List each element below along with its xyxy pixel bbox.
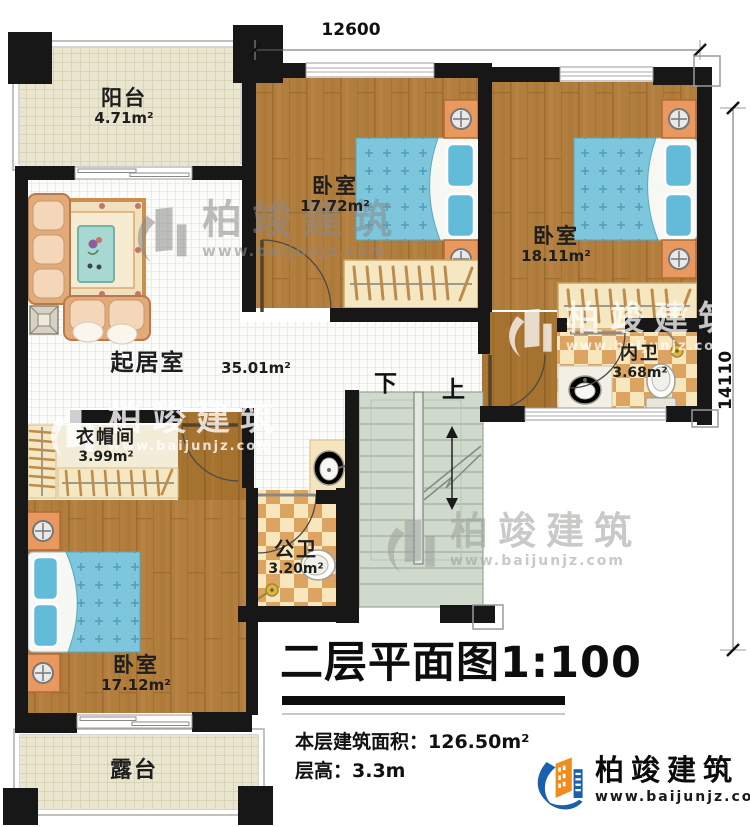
floor-area-line: 本层建筑面积：126.50m² [295, 727, 529, 754]
staircase [359, 392, 483, 607]
balcony-label: 阳台 4.71m² [62, 86, 186, 127]
nightstand [662, 240, 696, 278]
living-room-furniture [28, 194, 150, 344]
living-floor-c [345, 322, 490, 392]
wardrobe [344, 260, 478, 308]
window [560, 67, 653, 81]
coffee-table [78, 226, 114, 282]
public-bath-label: 公卫 3.20m² [254, 538, 338, 577]
nightstand [26, 512, 60, 550]
dimension-right: 14110 [716, 354, 736, 410]
bedroom-right-label: 卧室 18.11m² [494, 224, 618, 265]
bedroom-bottom-label: 卧室 17.12m² [74, 653, 198, 694]
bedroom-top-label: 卧室 17.72m² [273, 174, 397, 215]
company-name: 柏竣建筑 [595, 756, 750, 785]
living-room-area: 35.01m² [220, 360, 292, 377]
column [8, 32, 52, 84]
living-floor-d [28, 408, 70, 425]
terrace-label: 露台 [72, 758, 196, 783]
cloakroom-label: 衣帽间 3.99m² [54, 428, 158, 465]
window [306, 63, 434, 77]
stair-rail [414, 392, 423, 564]
floor-height-line: 层高：3.3m [295, 756, 405, 783]
dimension-top: 12600 [320, 20, 382, 40]
sliding-door [77, 715, 192, 728]
bed [28, 552, 140, 652]
side-table [30, 306, 58, 334]
title-rule [282, 696, 565, 705]
company-logo: 柏竣建筑 www.baijunjz.com [534, 750, 750, 810]
nightstand [662, 100, 696, 138]
window [525, 408, 666, 420]
inner-bath-label: 内卫 3.68m² [592, 344, 688, 381]
corridor-right-floor [482, 312, 557, 408]
living-room-label: 起居室 [98, 350, 198, 376]
nightstand [444, 100, 478, 138]
nightstand [26, 654, 60, 692]
title-divider [282, 713, 565, 715]
floorplan-canvas: 柏竣建筑 www.baijunjz.com 柏竣建筑 www.baijunjz.… [0, 0, 750, 827]
sliding-door [75, 167, 192, 179]
column [238, 786, 273, 825]
stairs-down-label: 下 [374, 364, 397, 398]
plan-title: 二层平面图1:100 [280, 628, 580, 690]
stairs-up-label: 上 [442, 370, 465, 404]
company-logo-icon [534, 750, 588, 810]
column [3, 788, 38, 825]
company-website: www.baijunjz.com [595, 790, 750, 804]
